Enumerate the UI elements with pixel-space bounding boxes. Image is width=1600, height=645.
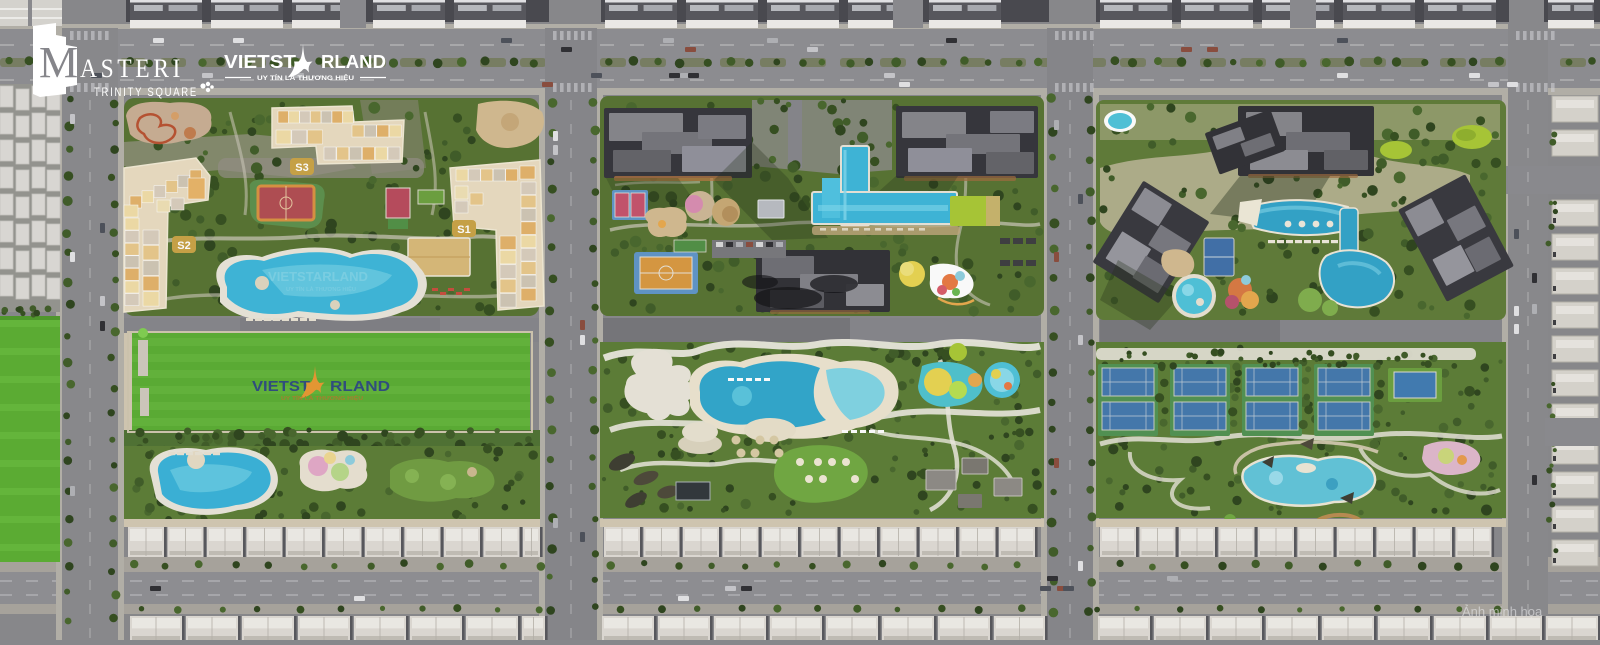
svg-text:UY TÍN LÀ THƯƠNG HIỆU: UY TÍN LÀ THƯƠNG HIỆU [257, 73, 354, 82]
svg-text:RLAND: RLAND [321, 52, 386, 72]
svg-text:TRINITY SQUARE: TRINITY SQUARE [94, 85, 198, 99]
svg-text:Ảnh minh họa: Ảnh minh họa [1462, 604, 1543, 619]
svg-text:ASTERI: ASTERI [80, 54, 184, 83]
svg-text:VIETST: VIETST [224, 52, 296, 72]
svg-text:M: M [39, 38, 78, 87]
